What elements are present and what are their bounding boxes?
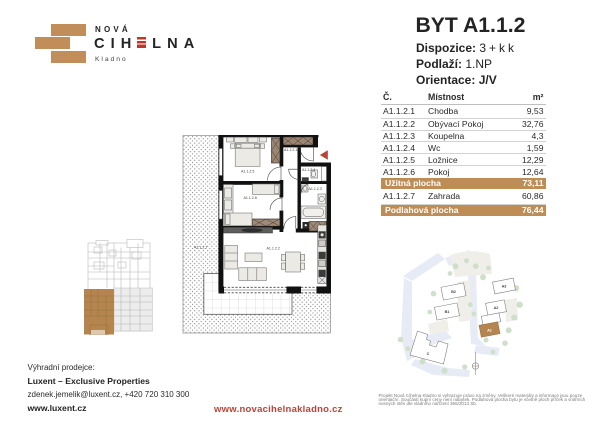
svg-text:A1.1.2.1: A1.1.2.1 xyxy=(284,148,297,152)
svg-text:A1.1.2.7: A1.1.2.7 xyxy=(194,245,207,249)
svg-text:A1.1.2.6: A1.1.2.6 xyxy=(244,196,257,200)
svg-text:A1: A1 xyxy=(487,328,492,332)
svg-text:B1: B1 xyxy=(445,310,450,314)
svg-text:A3: A3 xyxy=(502,285,507,289)
svg-text:A2: A2 xyxy=(494,306,499,310)
svg-text:A1.1.2.4: A1.1.2.4 xyxy=(302,168,315,172)
svg-text:C: C xyxy=(427,352,430,356)
svg-text:A1.1.2.3: A1.1.2.3 xyxy=(309,187,322,191)
svg-text:A1.1.2.5: A1.1.2.5 xyxy=(241,170,254,174)
svg-text:B2: B2 xyxy=(451,290,456,294)
svg-text:A1.1.2.2: A1.1.2.2 xyxy=(267,246,280,250)
